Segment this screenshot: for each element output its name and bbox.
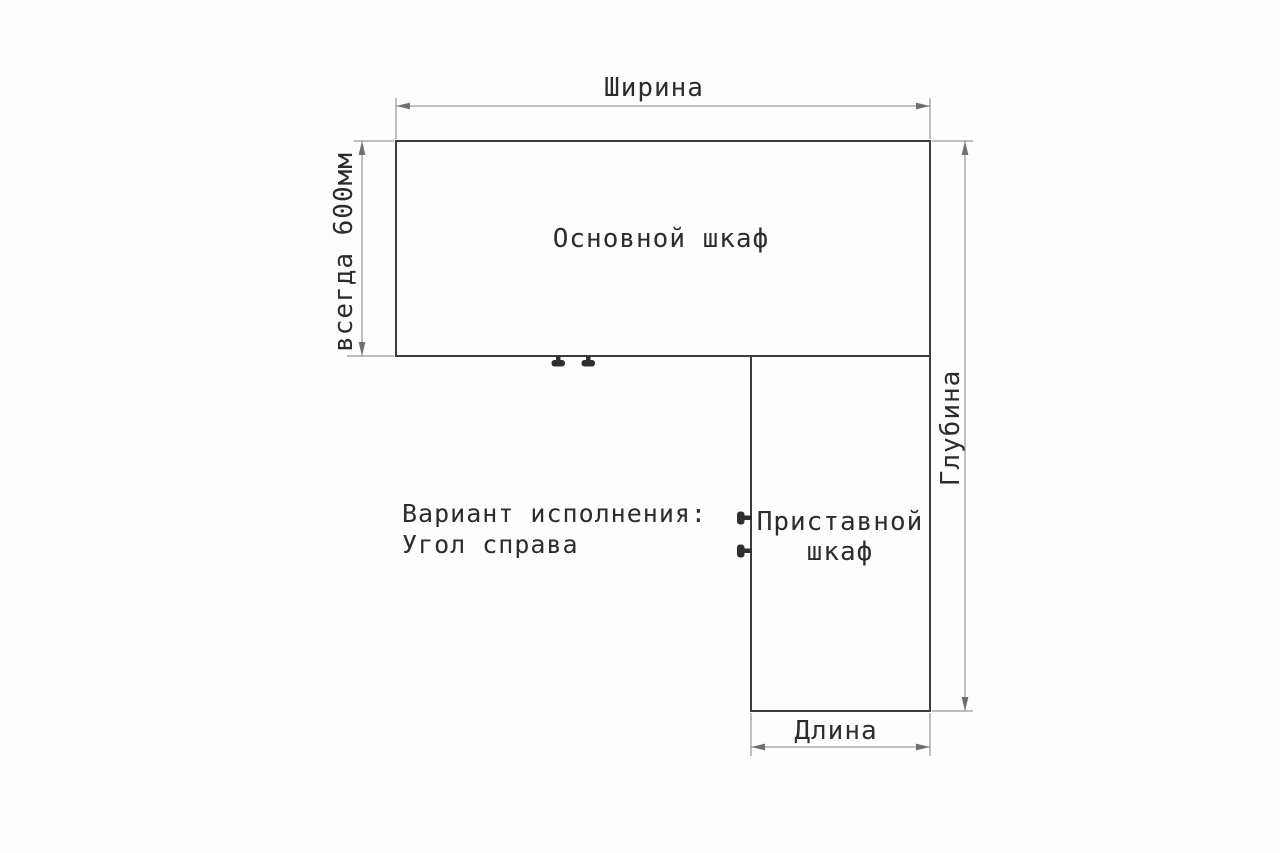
- attached-cabinet-label-line1: Приставной: [757, 507, 924, 537]
- variant-note-line2: Угол справа: [402, 529, 707, 560]
- door-handle-icon: [552, 356, 566, 367]
- attached-cabinet-label-line2: шкаф: [757, 537, 924, 567]
- attached-cabinet-label: Приставной шкаф: [757, 507, 924, 567]
- arrowhead-down-icon: [359, 342, 366, 356]
- variant-note: Вариант исполнения: Угол справа: [402, 498, 707, 560]
- arrowhead-up-icon: [359, 141, 366, 155]
- arrowhead-left-icon: [751, 744, 765, 751]
- main-cabinet-label: Основной шкаф: [553, 224, 770, 254]
- arrowhead-down-icon: [962, 697, 969, 711]
- diagram-canvas: Ширина всегда 600мм Глубина Длина Основн…: [0, 0, 1280, 853]
- arrowhead-right-icon: [916, 744, 930, 751]
- length-dimension-label: Длина: [794, 716, 877, 746]
- door-handle-icon: [582, 356, 596, 367]
- door-handle-icon: [737, 512, 752, 525]
- arrowhead-up-icon: [962, 141, 969, 155]
- fixed-depth-dimension-label: всегда 600мм: [329, 152, 359, 352]
- width-dimension-label: Ширина: [604, 73, 704, 103]
- cabinet-scheme-drawing: [0, 0, 1280, 853]
- depth-dimension-label: Глубина: [936, 370, 966, 487]
- door-handle-icon: [737, 545, 752, 558]
- arrowhead-left-icon: [396, 103, 410, 110]
- width-dimension: [396, 98, 930, 139]
- arrowhead-right-icon: [916, 103, 930, 110]
- variant-note-line1: Вариант исполнения:: [402, 498, 707, 529]
